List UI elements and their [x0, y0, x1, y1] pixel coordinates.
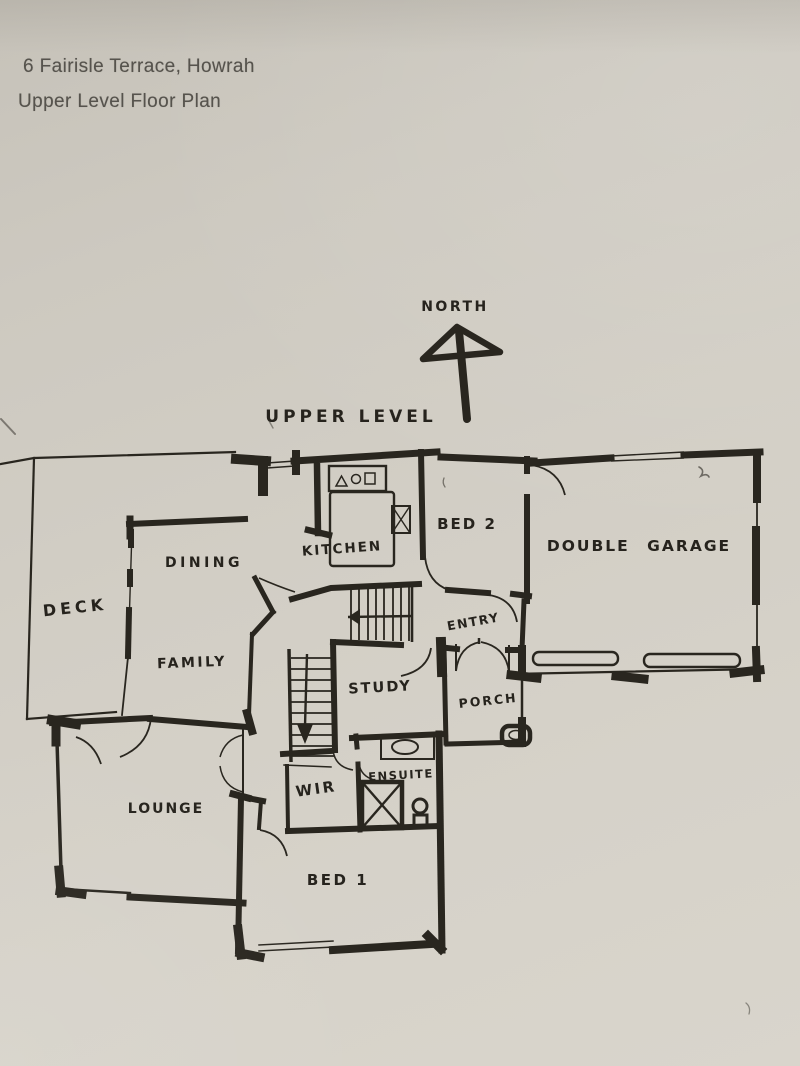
floor-plan-drawing: UPPER LEVEL NORTH DECK DINING FAMILY KIT… [0, 0, 800, 1066]
room-label-entry: ENTRY [446, 609, 501, 633]
plan-level-label: UPPER LEVEL [265, 407, 436, 427]
north-arrow-shaft [459, 331, 467, 419]
stairs-upper-flight [348, 586, 413, 642]
room-label-dining: DINING [165, 555, 243, 571]
room-label-porch: PORCH [458, 690, 518, 711]
north-arrow-icon [423, 327, 500, 419]
room-label-lounge: LOUNGE [128, 801, 204, 817]
room-label-bed1: BED 1 [307, 871, 369, 889]
north-label: NORTH [421, 299, 489, 315]
room-label-kitchen: KITCHEN [301, 538, 382, 560]
photographed-floor-plan-page: 6 Fairisle Terrace, Howrah Upper Level F… [0, 0, 800, 1066]
room-label-ensuite: ENSUITE [368, 766, 434, 783]
stair-direction-arrow [305, 654, 307, 726]
toilet [413, 799, 427, 813]
deck-outline [1, 452, 235, 719]
room-label-double-garage: DOUBLE GARAGE [547, 537, 731, 555]
stairs-lower-flight [289, 649, 334, 762]
stray-pen-marks [1, 419, 750, 1014]
garage-doors [533, 652, 740, 667]
room-label-bed2: BED 2 [437, 515, 497, 533]
room-label-wir: WIR [294, 777, 337, 801]
room-label-study: STUDY [348, 678, 412, 697]
room-label-family: FAMILY [157, 654, 227, 672]
room-label-deck: DECK [42, 595, 108, 621]
basin [392, 740, 418, 754]
